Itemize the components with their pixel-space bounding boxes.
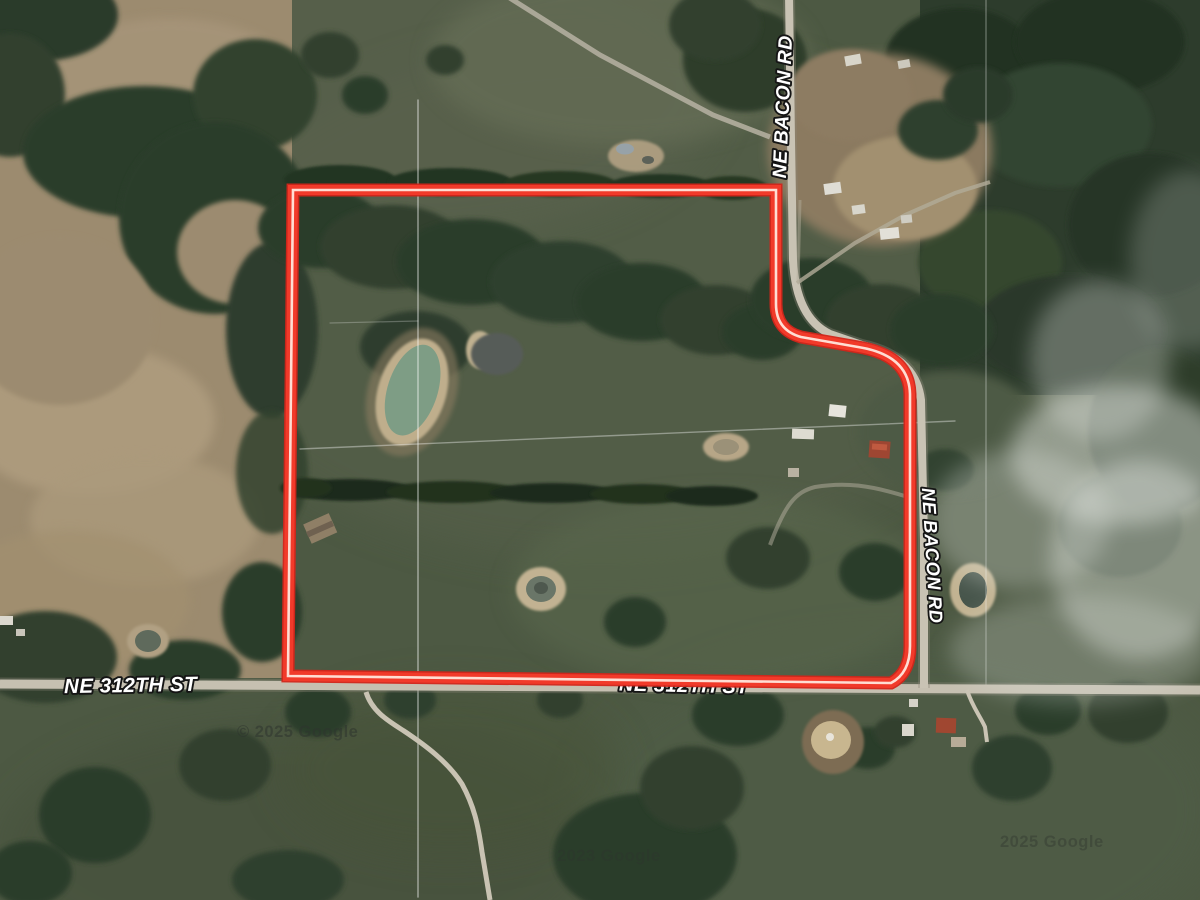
pond-bottom-center: [516, 567, 566, 611]
lagoon-bottom-right: [802, 710, 864, 774]
pond-left-small: [127, 624, 169, 658]
watermark-right: 2025 Google: [1000, 833, 1104, 851]
pond-mid-tan: [703, 433, 749, 461]
pond-top-small: [608, 140, 664, 172]
watermark-center: 2023 Google: [557, 847, 661, 865]
watermark-left: © 2025 Google: [237, 723, 358, 741]
map-graphics: NE 312TH ST NE BACON RD NE BACON RD NE 3…: [0, 0, 1200, 900]
plowed-field-left: [0, 0, 318, 703]
road-label-312th-left: NE 312TH ST: [64, 673, 198, 698]
satellite-map-canvas[interactable]: NE 312TH ST NE BACON RD NE BACON RD NE 3…: [0, 0, 1200, 900]
